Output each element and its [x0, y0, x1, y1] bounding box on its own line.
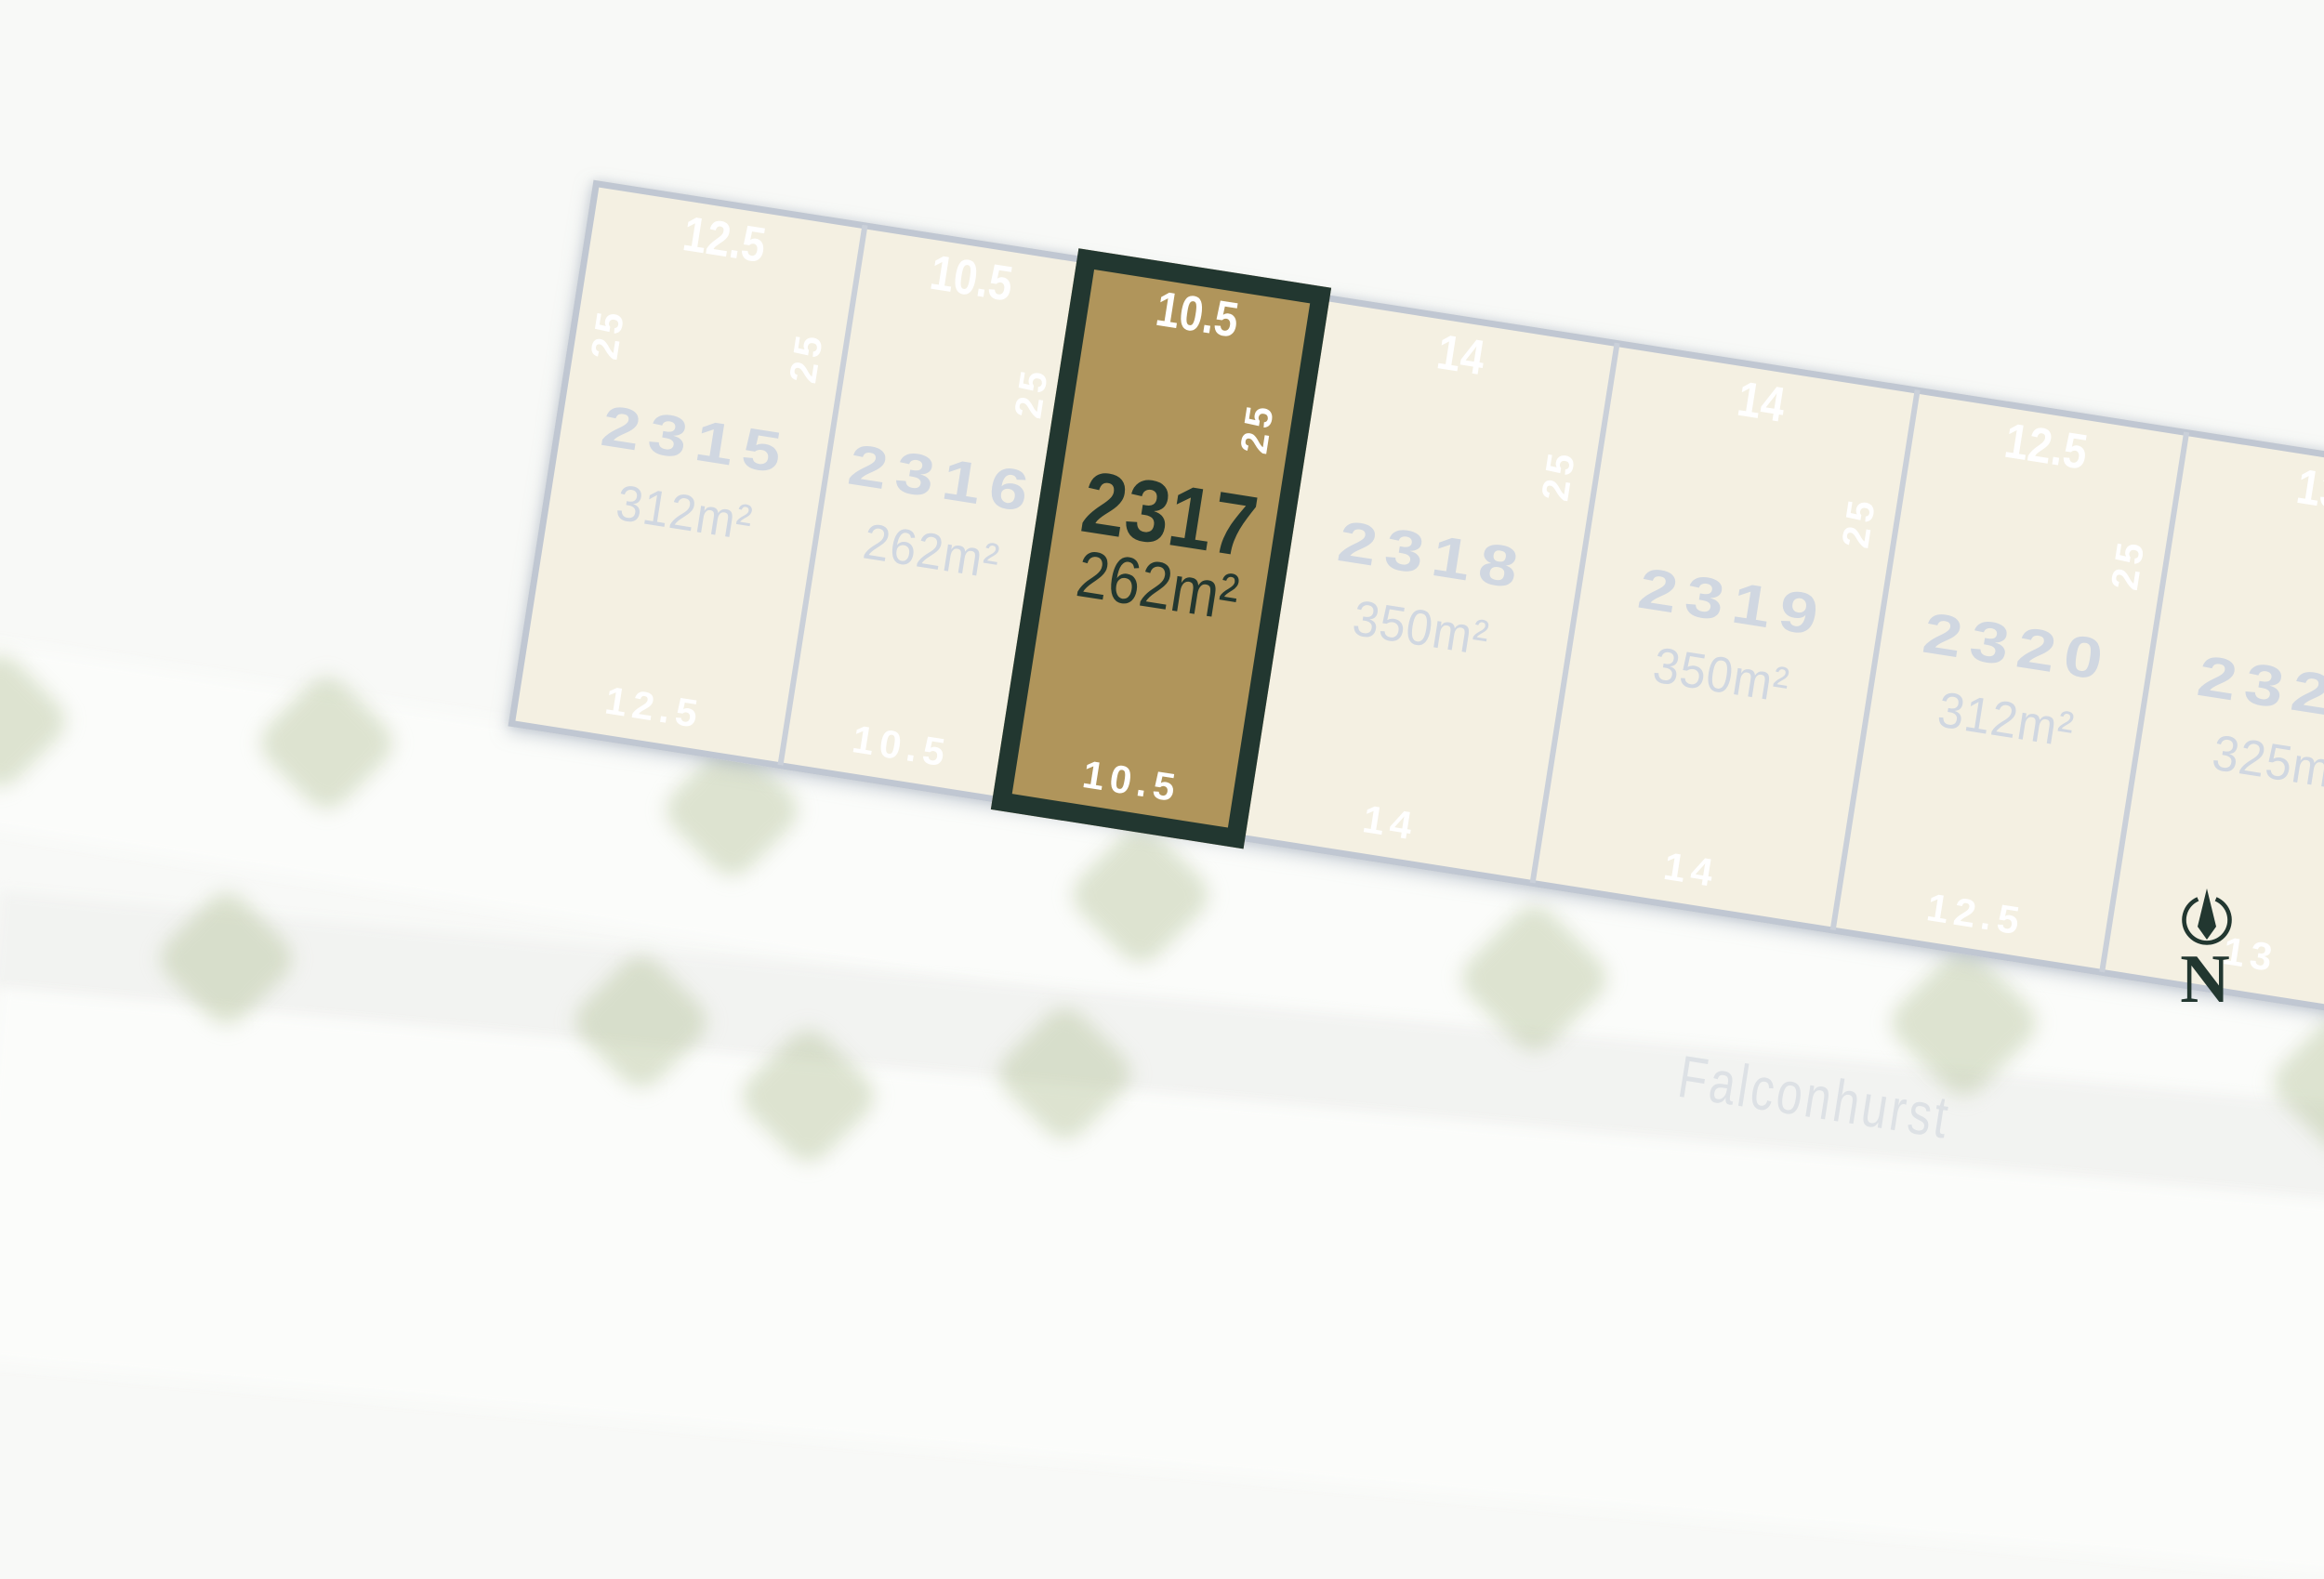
svg-text:N: N [2180, 941, 2229, 1018]
